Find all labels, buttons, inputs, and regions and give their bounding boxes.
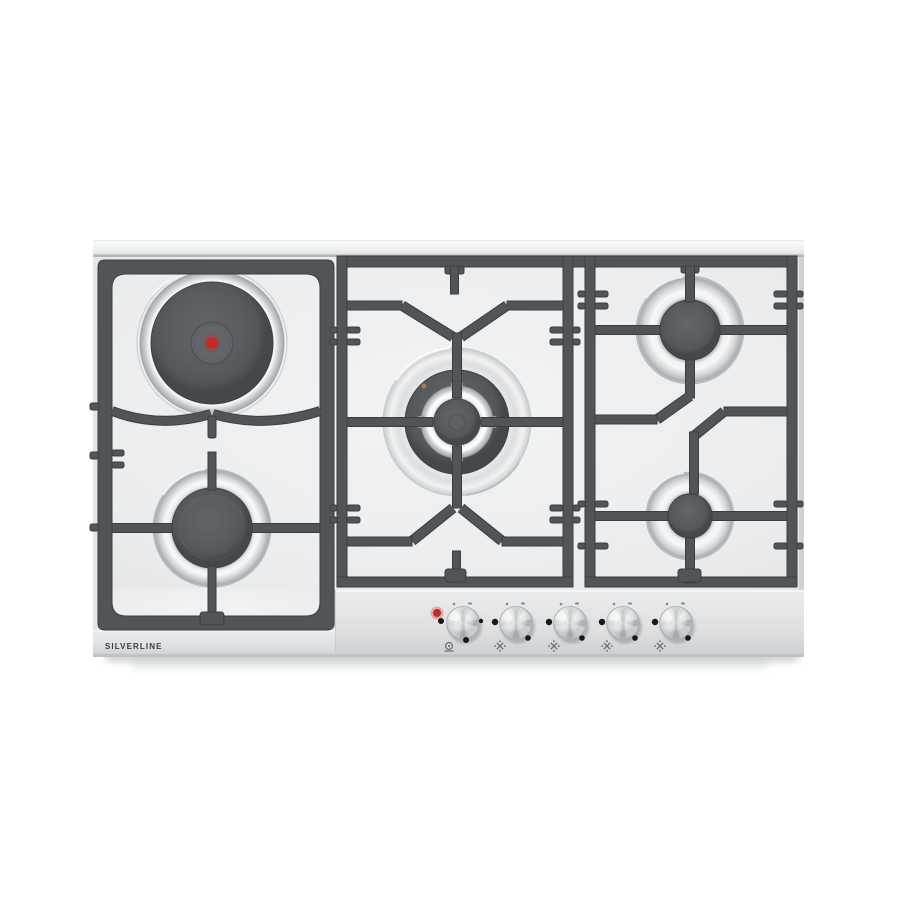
cooktop-product-photo: SILVERLINE xyxy=(0,0,900,900)
burner-cap xyxy=(668,494,712,538)
left-bevel xyxy=(93,257,97,631)
back-trim xyxy=(93,240,804,257)
brand-logo: SILVERLINE xyxy=(105,642,163,651)
cooktop-unit: SILVERLINE xyxy=(90,240,804,657)
hotplate-indicator-dot xyxy=(206,337,218,349)
power-led xyxy=(433,609,441,617)
burner-cap xyxy=(172,488,252,568)
burner-cap xyxy=(660,300,720,360)
product-photo-canvas: SILVERLINE xyxy=(0,0,900,900)
igniter-dot xyxy=(422,384,427,389)
